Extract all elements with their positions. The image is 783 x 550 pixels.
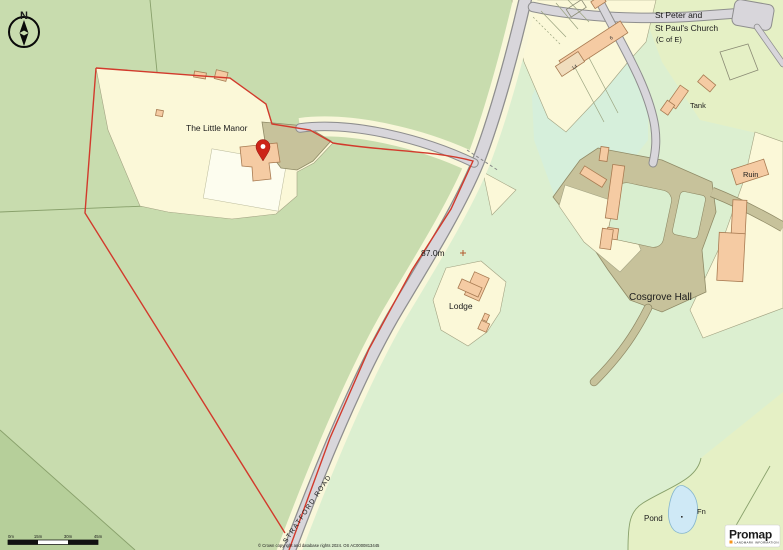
scale-label-0: 0m — [8, 534, 14, 539]
spot-height-label: 87.0m — [421, 248, 445, 258]
tank-label: Tank — [690, 101, 706, 110]
pin-dot — [261, 144, 266, 149]
hall-west-building — [600, 228, 614, 249]
scale-label-2: 30m — [64, 534, 73, 539]
scale-label-3: 45m — [94, 534, 103, 539]
logo-wordmark: Promap — [729, 528, 772, 542]
farm-building-3 — [599, 147, 609, 162]
pond-label: Pond — [644, 514, 663, 523]
church-label-line2: St Paul's Church — [655, 23, 718, 33]
scale-bar-seg2 — [68, 540, 98, 545]
cosgrove-hall-north — [731, 200, 747, 237]
scale-bar-seg1 — [8, 540, 38, 545]
logo-subtitle: LANDMARK INFORMATION — [735, 541, 779, 545]
cosgrove-hall-label: Cosgrove Hall — [629, 292, 692, 303]
manor-outbuilding-3 — [156, 110, 164, 117]
church-label-line3: (C of E) — [656, 35, 682, 44]
lodge-label: Lodge — [449, 301, 473, 311]
pond-dot — [681, 516, 683, 518]
church-label-line1: St Peter and — [655, 10, 703, 20]
map[interactable]: St Peter and St Paul's Church (C of E) T… — [0, 0, 783, 550]
map-canvas[interactable]: St Peter and St Paul's Church (C of E) T… — [0, 0, 783, 550]
promap-logo: Promap LANDMARK INFORMATION — [725, 525, 780, 547]
little-manor-label: The Little Manor — [186, 123, 248, 133]
scale-label-1: 15m — [34, 534, 43, 539]
cosgrove-hall-main — [717, 232, 745, 281]
fn-label: Fn — [697, 507, 706, 516]
logo-accent-square — [730, 541, 733, 544]
copyright-text: © Crown copyright and database rights 20… — [258, 543, 380, 548]
ruin-label: Ruin — [743, 170, 758, 179]
